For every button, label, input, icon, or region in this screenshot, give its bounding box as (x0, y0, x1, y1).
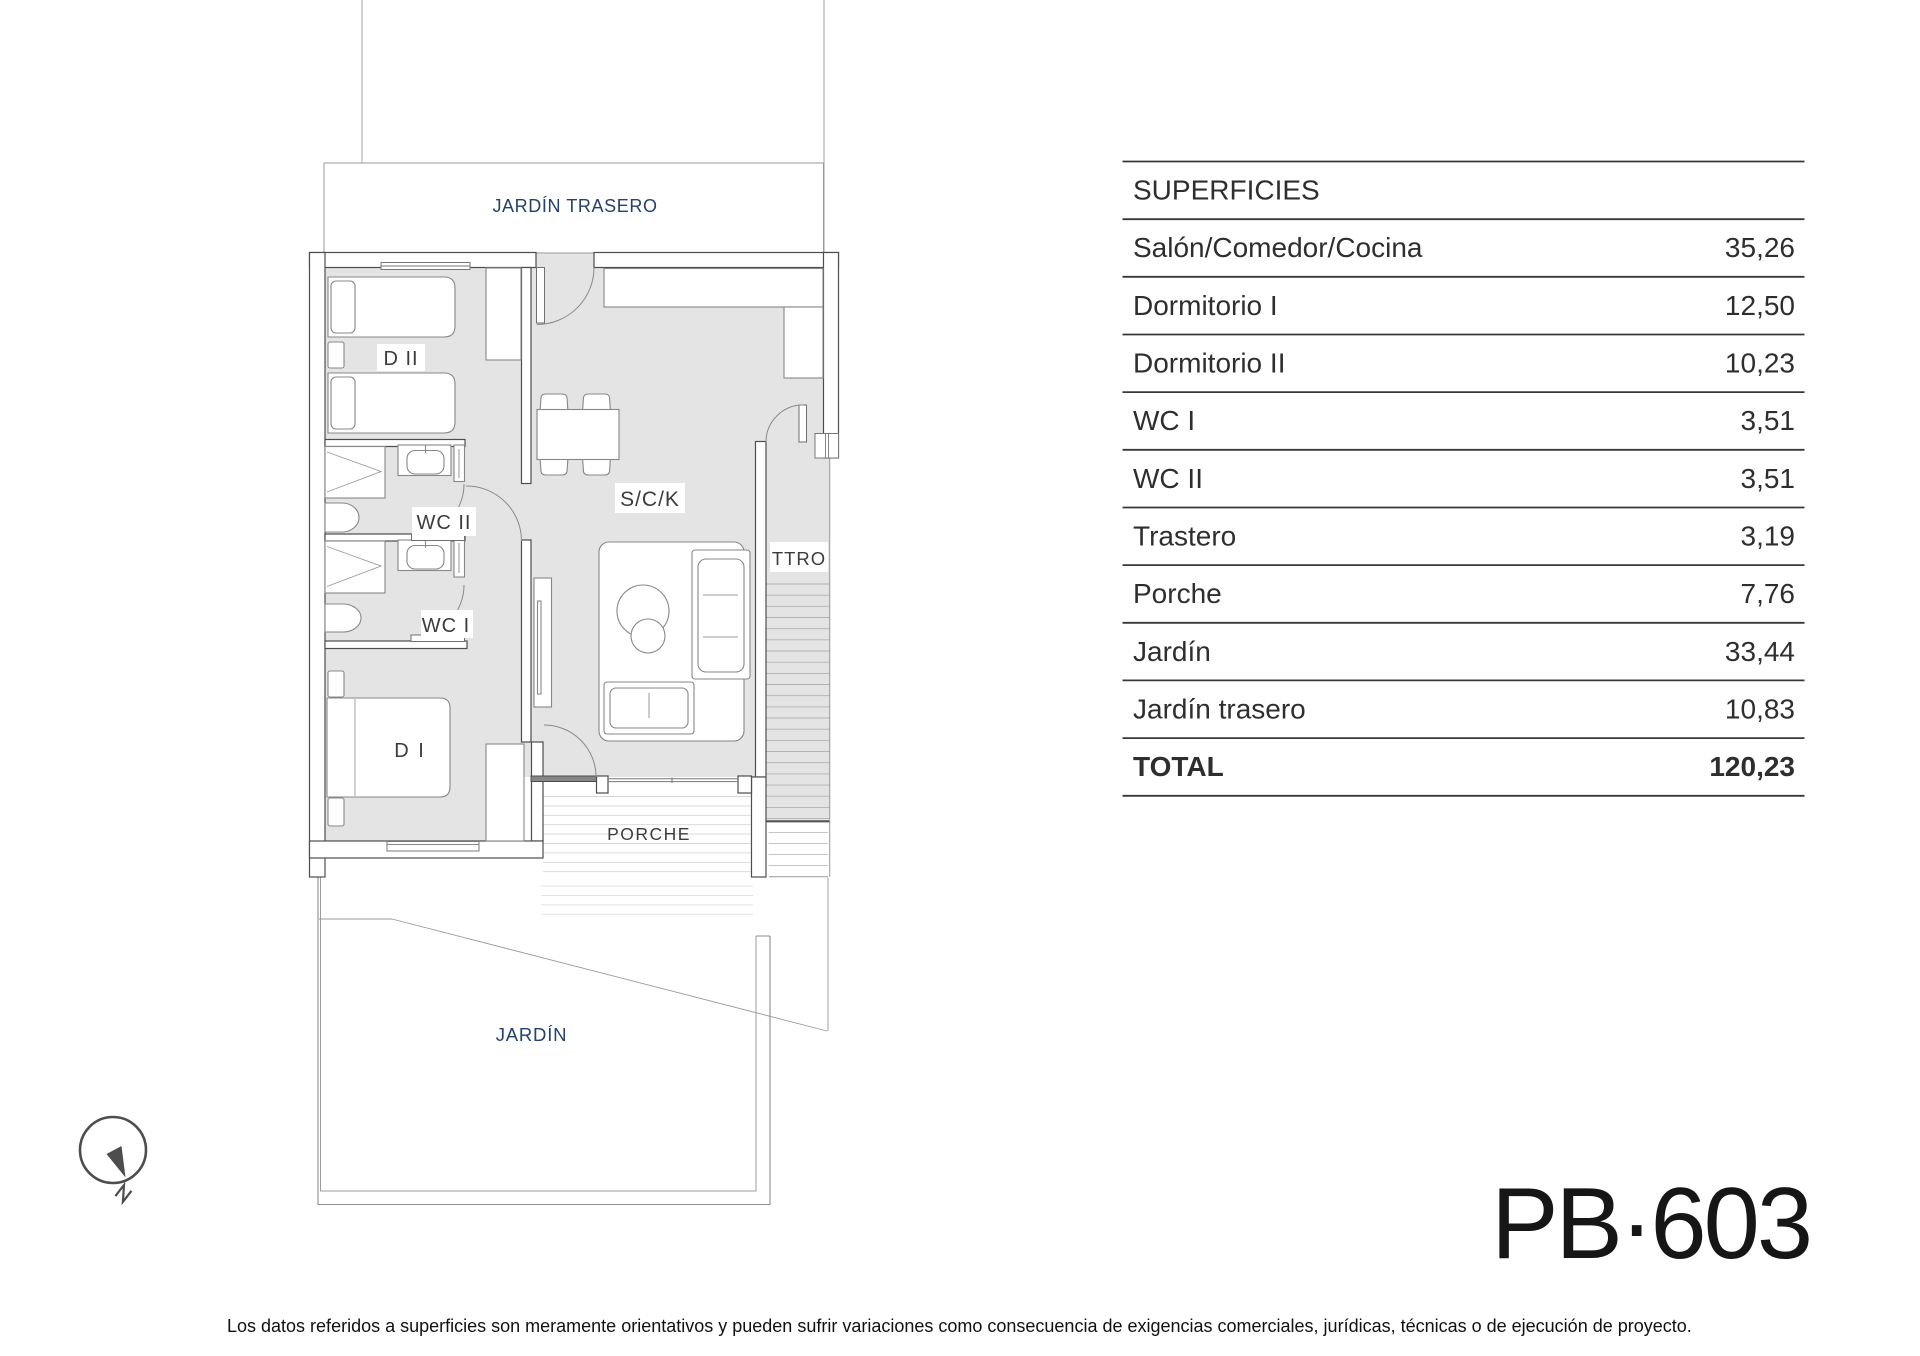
svg-text:PB·603: PB·603 (1491, 1168, 1810, 1280)
svg-text:JARDÍN: JARDÍN (496, 1024, 568, 1045)
svg-text:TOTAL: TOTAL (1133, 751, 1224, 782)
svg-text:S/C/K: S/C/K (620, 488, 680, 511)
svg-text:WC II: WC II (417, 512, 472, 534)
svg-text:Dormitorio II: Dormitorio II (1133, 348, 1285, 379)
svg-text:PORCHE: PORCHE (607, 824, 691, 844)
svg-text:3,51: 3,51 (1741, 405, 1796, 436)
svg-text:WC I: WC I (422, 615, 470, 637)
svg-text:Porche: Porche (1133, 578, 1222, 609)
svg-text:3,19: 3,19 (1741, 521, 1796, 552)
svg-text:10,23: 10,23 (1725, 348, 1795, 379)
svg-text:WC I: WC I (1133, 405, 1195, 436)
svg-text:Los datos referidos a superfic: Los datos referidos a superficies son me… (227, 1316, 1692, 1336)
svg-text:7,76: 7,76 (1741, 578, 1796, 609)
svg-text:JARDÍN TRASERO: JARDÍN TRASERO (492, 196, 657, 216)
svg-text:Jardín: Jardín (1133, 636, 1211, 667)
svg-text:Jardín trasero: Jardín trasero (1133, 693, 1306, 724)
svg-text:Salón/Comedor/Cocina: Salón/Comedor/Cocina (1133, 232, 1423, 263)
svg-text:WC II: WC II (1133, 463, 1203, 494)
svg-text:35,26: 35,26 (1725, 232, 1795, 263)
svg-text:33,44: 33,44 (1725, 636, 1795, 667)
svg-text:3,51: 3,51 (1741, 463, 1796, 494)
svg-text:SUPERFICIES: SUPERFICIES (1133, 175, 1320, 206)
svg-text:Trastero: Trastero (1133, 521, 1236, 552)
svg-text:Dormitorio I: Dormitorio I (1133, 290, 1278, 321)
svg-text:10,83: 10,83 (1725, 693, 1795, 724)
svg-text:120,23: 120,23 (1709, 751, 1795, 782)
svg-text:12,50: 12,50 (1725, 290, 1795, 321)
svg-text:D II: D II (383, 348, 418, 370)
svg-text:D I: D I (394, 740, 426, 762)
svg-text:TTRO: TTRO (772, 548, 826, 569)
